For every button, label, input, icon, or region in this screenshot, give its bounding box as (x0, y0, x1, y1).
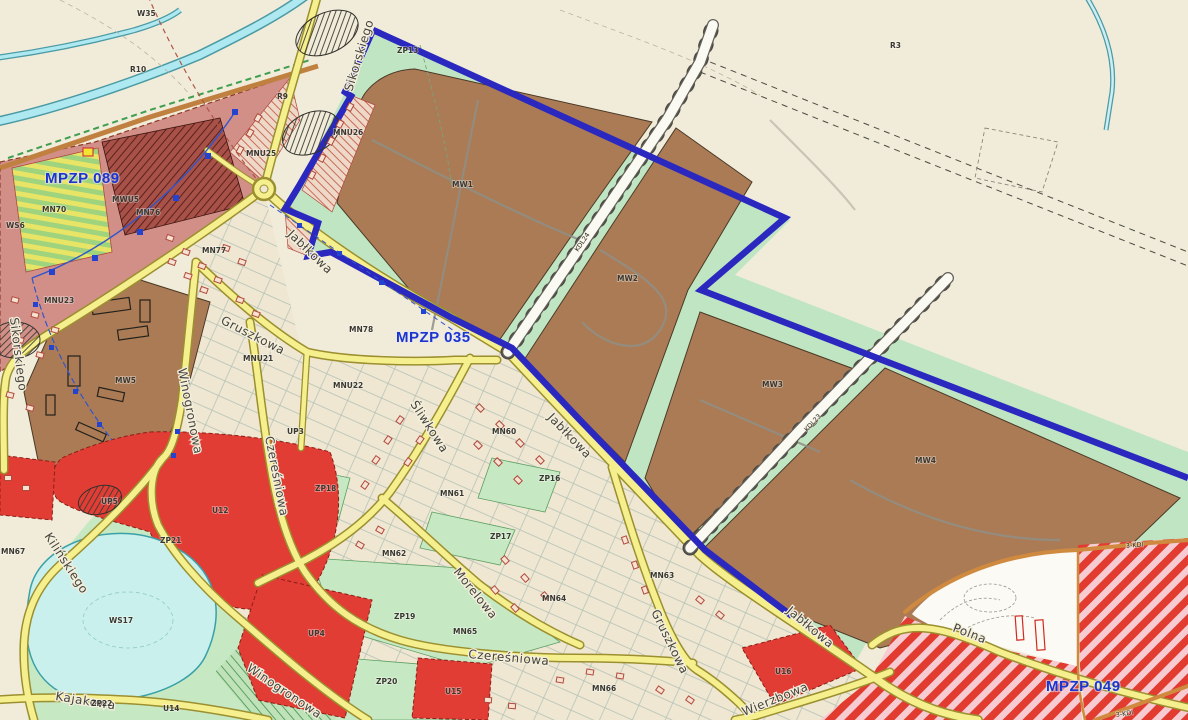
zone-label: UP3 (287, 427, 304, 436)
zone-label: MNU23 (44, 296, 74, 305)
zone-label: MW3 (762, 380, 783, 389)
zoning-map-svg[interactable]: Sikorskiego Sikorskiego Jabłkowa Jabłkow… (0, 0, 1188, 720)
zone-label: UP4 (308, 629, 325, 638)
zone-label: MW4 (915, 456, 936, 465)
zone-label: WS6 (6, 221, 25, 230)
zone-label: R9 (277, 92, 288, 101)
zone-label: MN63 (650, 571, 674, 580)
zone-label: U16 (775, 667, 792, 676)
zone-label: ZP17 (490, 532, 511, 541)
zone-label: ZP21 (160, 536, 181, 545)
zone-label: MN65 (453, 627, 477, 636)
zone-label: MN61 (440, 489, 464, 498)
zone-label: MWU5 (112, 195, 139, 204)
plan-label-mpzp089: MPZP 089 (45, 170, 120, 187)
zone-label: MNU25 (246, 149, 276, 158)
zone-label: MN70 (42, 205, 66, 214)
zone-label: ZP20 (376, 677, 397, 686)
zone-label: UP5 (101, 497, 118, 506)
zone-label: ZP16 (539, 474, 560, 483)
zone-label: MW1 (452, 180, 473, 189)
zone-label: U15 (445, 687, 462, 696)
zone-label: MN62 (382, 549, 406, 558)
zone-label: MNU22 (333, 381, 363, 390)
zone-label: MN67 (1, 547, 25, 556)
zone-label: R3 (890, 41, 901, 50)
plan-label-mpzp035: MPZP 035 (396, 329, 471, 346)
zone-label: R10 (130, 65, 146, 74)
zone-label: MNU26 (333, 128, 363, 137)
zone-label: W35 (137, 9, 156, 18)
zone-label: ZP22 (91, 699, 112, 708)
zone-label: MN78 (349, 325, 373, 334)
zone-label: MN76 (136, 208, 160, 217)
zone-label: ZP18 (315, 484, 336, 493)
zone-label: U14 (163, 704, 180, 713)
zone-label: MN66 (592, 684, 616, 693)
zone-label: MW5 (115, 376, 136, 385)
zone-label: ZP19 (394, 612, 415, 621)
road-code: 3-KDl (1125, 540, 1143, 550)
plan-label-mpzp049: MPZP 049 (1046, 678, 1121, 695)
zone-label: MW2 (617, 274, 638, 283)
zone-label: MN77 (202, 246, 226, 255)
roundabout (253, 178, 275, 200)
zone-label: MN60 (492, 427, 516, 436)
zone-label: ZP13 (397, 46, 418, 55)
zone-label: MNU21 (243, 354, 273, 363)
zone-label: U12 (212, 506, 229, 515)
zoning-map-canvas[interactable]: Sikorskiego Sikorskiego Jabłkowa Jabłkow… (0, 0, 1188, 720)
zone-label: WS17 (109, 616, 133, 625)
zone-label: MN64 (542, 594, 566, 603)
